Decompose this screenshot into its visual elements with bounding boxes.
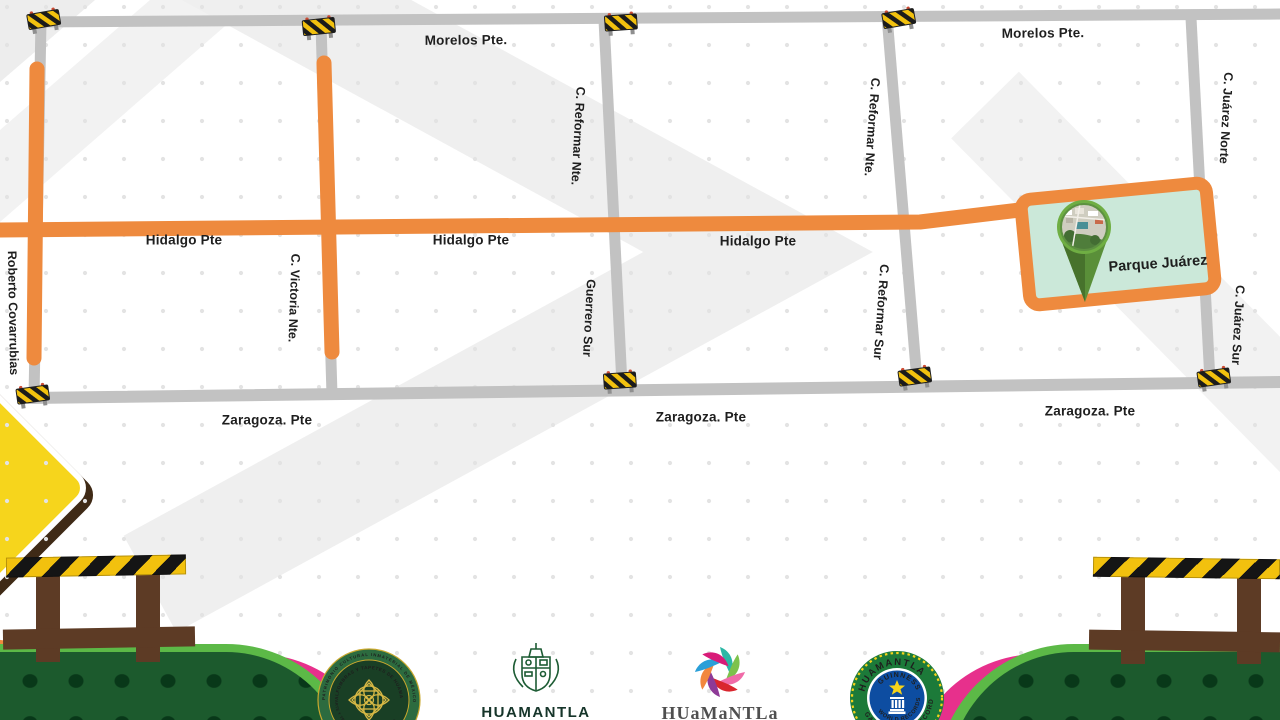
fence-rail-left [3,626,195,649]
street-label-morelos-1: Morelos Pte. [425,32,508,48]
route-map-poster: Morelos Pte. Morelos Pte. Hidalgo Pte Hi… [0,0,1280,720]
street-map: Morelos Pte. Morelos Pte. Hidalgo Pte Hi… [0,0,1280,720]
pueblo-magico-pinwheel-icon [687,644,753,700]
gobierno-municipal-logo: HUAMANTLA GOBIERNO MUNICIPAL [476,641,596,720]
street-label-roberto-covarrubias: Roberto Covarrubias [5,251,21,376]
hazard-stripe-bar-left [6,554,186,577]
route-victoria [324,63,332,352]
street-label-zaragoza-2: Zaragoza. Pte [656,410,747,425]
guinness-record-logo: HUAMANTLA GANADOR DEL RECORD GUINNESS WO… [848,649,946,720]
alfombras-tapetes-logo: PATRIMONIO CULTURAL INMATERIAL DE MÉXICO… [316,647,422,720]
gobierno-crest-icon [507,641,565,697]
street-label-hidalgo-3: Hidalgo Pte [720,234,797,249]
street-label-zaragoza-3: Zaragoza. Pte [1045,404,1136,419]
parque-juarez-block [1020,182,1215,305]
gobierno-name: HUAMANTLA [476,704,596,720]
street-label-morelos-2: Morelos Pte. [1002,25,1085,41]
pueblo-magico-logo: HUaMaNTLa PUEBLO MáGICO [653,644,787,720]
street-label-hidalgo-2: Hidalgo Pte [433,233,510,248]
fence-post [136,568,160,662]
route-roberto-covarrubias [34,69,37,358]
fence-rail-right [1089,630,1280,653]
pueblo-magico-name: HUaMaNTLa [662,705,779,720]
street-label-hidalgo-1: Hidalgo Pte [146,233,223,248]
hazard-stripe-bar-right [1093,557,1280,580]
dot-grid-background [0,0,1280,720]
street-label-zaragoza-1: Zaragoza. Pte [222,413,313,428]
